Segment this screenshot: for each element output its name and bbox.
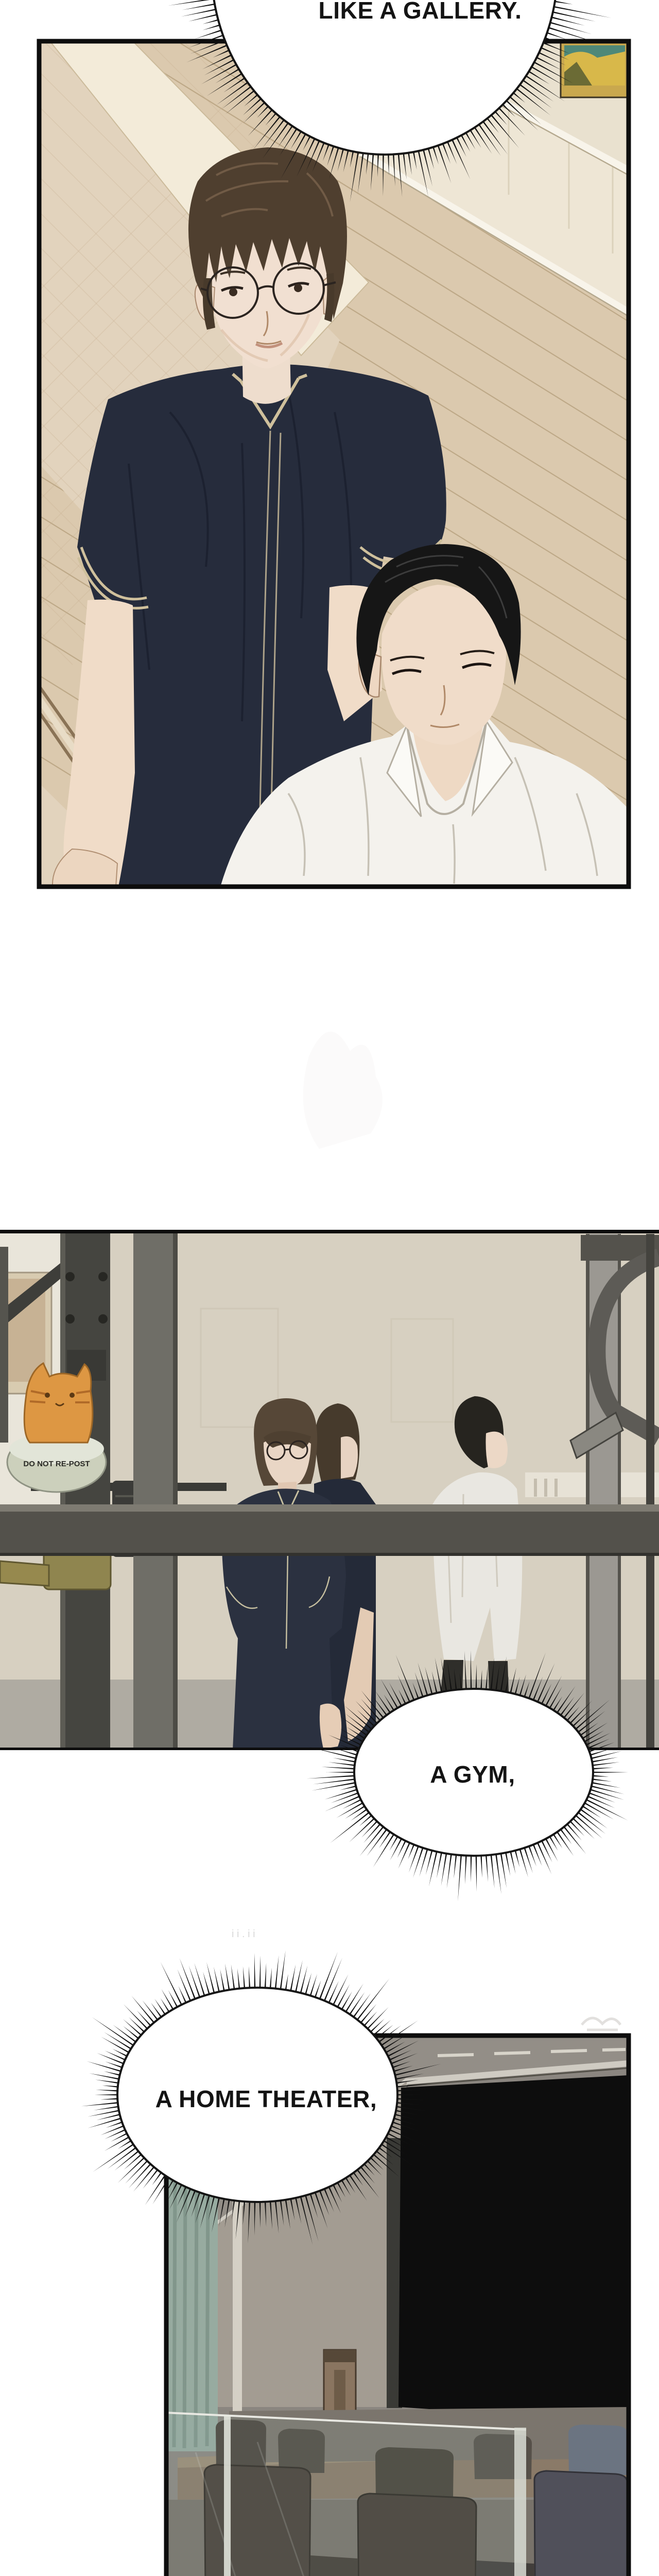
svg-text:LIKE A GALLERY.: LIKE A GALLERY. — [319, 0, 522, 24]
svg-text:A GYM,: A GYM, — [430, 1761, 515, 1788]
svg-text:A HOME THEATER,: A HOME THEATER, — [155, 2086, 377, 2112]
svg-text:i i . i i: i i . i i — [232, 1928, 255, 1940]
svg-text:DO NOT RE-POST: DO NOT RE-POST — [23, 1460, 90, 1468]
